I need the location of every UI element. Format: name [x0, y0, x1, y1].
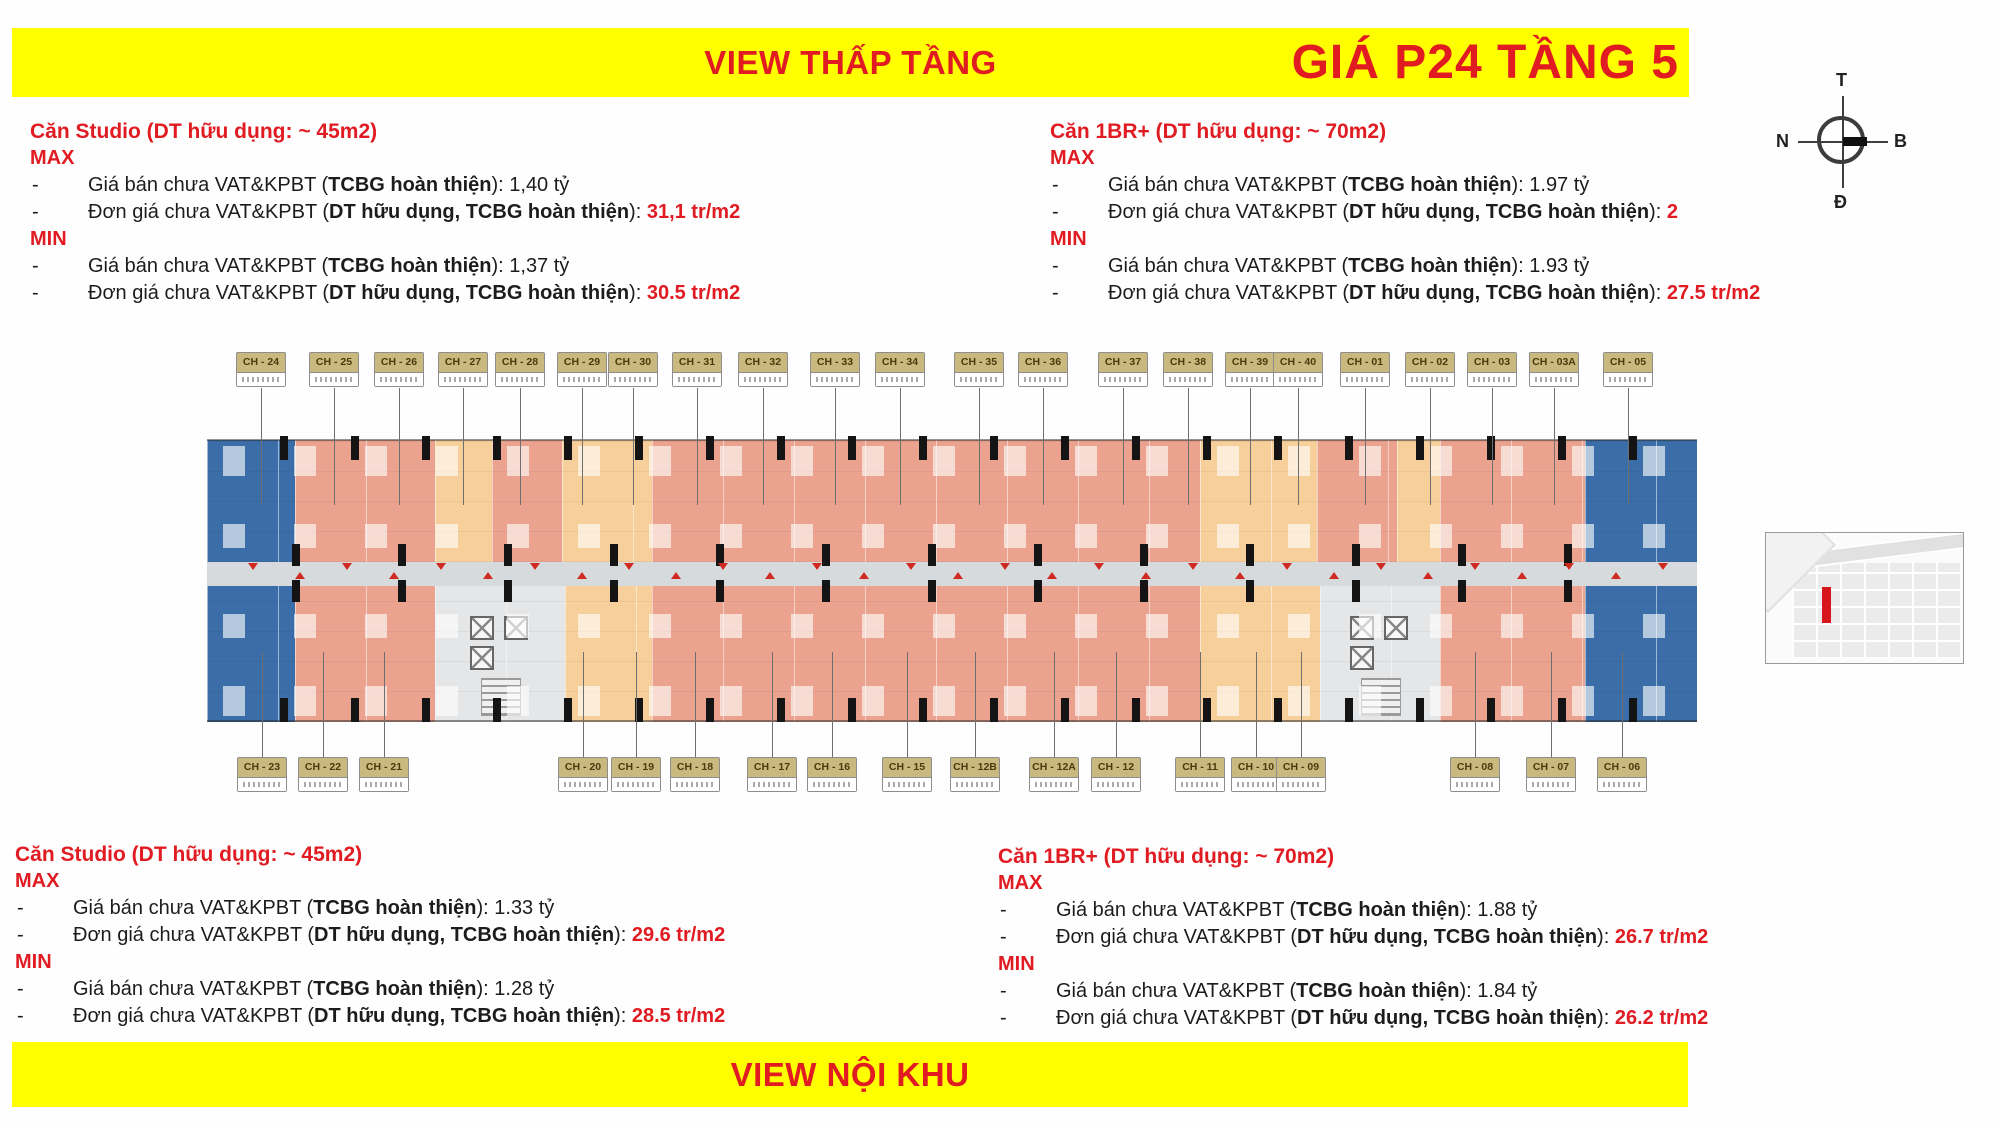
door-marker: [671, 572, 681, 579]
unit-leader-line: [633, 388, 634, 505]
corridor-wall-tick: [1564, 580, 1572, 602]
unit-label: CH - 12B: [950, 757, 1000, 792]
corridor-wall-tick: [504, 544, 512, 566]
corridor-wall-tick: [292, 580, 300, 602]
wall-tick: [351, 436, 359, 460]
unit-area-strip: [1164, 372, 1212, 386]
unit-code: CH - 26: [375, 353, 423, 372]
unit-code: CH - 32: [739, 353, 787, 372]
wall-tick: [1558, 436, 1566, 460]
unit-leader-line: [835, 388, 836, 505]
wall-tick: [848, 436, 856, 460]
wall-tick: [1203, 436, 1211, 460]
unit-label: CH - 37: [1098, 352, 1148, 387]
wall-tick: [919, 436, 927, 460]
unit-leader-line: [975, 652, 976, 757]
wall-tick: [1132, 436, 1140, 460]
unit-label: CH - 08: [1450, 757, 1500, 792]
unit-area-strip: [238, 777, 286, 791]
unit-area-strip: [1092, 777, 1140, 791]
unit-leader-line: [463, 388, 464, 505]
unit-leader-line: [1200, 652, 1201, 757]
corridor-wall-tick: [1246, 580, 1254, 602]
corridor-wall-tick: [504, 580, 512, 602]
unit-leader-line: [1301, 652, 1302, 757]
wall-tick: [1416, 436, 1424, 460]
unit-code: CH - 30: [609, 353, 657, 372]
corridor-wall-tick: [1034, 544, 1042, 566]
unit-area-strip: [808, 777, 856, 791]
door-marker: [812, 563, 822, 570]
unit-label: CH - 36: [1018, 352, 1068, 387]
door-marker: [1658, 563, 1668, 570]
unit-label: CH - 39: [1225, 352, 1275, 387]
facade-line: [207, 439, 1697, 441]
door-marker: [577, 572, 587, 579]
door-marker: [483, 572, 493, 579]
unit-label: CH - 35: [954, 352, 1004, 387]
unit-label: CH - 06: [1597, 757, 1647, 792]
unit-label: CH - 02: [1405, 352, 1455, 387]
door-marker: [1047, 572, 1057, 579]
wall-tick: [1132, 698, 1140, 722]
unit-area-strip: [1468, 372, 1516, 386]
unit-label: CH - 34: [875, 352, 925, 387]
unit-leader-line: [900, 388, 901, 505]
unit-code: CH - 15: [883, 758, 931, 777]
corridor-wall-tick: [928, 544, 936, 566]
unit-leader-line: [1554, 388, 1555, 505]
unit-leader-line: [1475, 652, 1476, 757]
unit-area-strip: [1274, 372, 1322, 386]
unit-code: CH - 38: [1164, 353, 1212, 372]
unit-label: CH - 19: [611, 757, 661, 792]
unit-leader-line: [697, 388, 698, 505]
unit-leader-line: [583, 652, 584, 757]
bottom-banner: VIEW NỘI KHU: [12, 1042, 1688, 1107]
unit-leader-line: [261, 388, 262, 505]
unit-area-strip: [739, 372, 787, 386]
wall-tick: [1274, 436, 1282, 460]
unit-area-strip: [612, 777, 660, 791]
unit-leader-line: [1430, 388, 1431, 505]
unit-leader-line: [763, 388, 764, 505]
corridor-wall-tick: [716, 580, 724, 602]
wall-tick: [280, 436, 288, 460]
unit-code: CH - 39: [1226, 353, 1274, 372]
wall-tick: [1345, 698, 1353, 722]
unit-label: CH - 27: [438, 352, 488, 387]
map-street-grid: [1792, 563, 1960, 659]
door-marker: [1282, 563, 1292, 570]
unit-code: CH - 33: [811, 353, 859, 372]
site-map-thumbnail: [1765, 532, 1964, 664]
unit-leader-line: [772, 652, 773, 757]
unit-code: CH - 23: [238, 758, 286, 777]
unit-label: CH - 30: [608, 352, 658, 387]
unit-code: CH - 12B: [951, 758, 999, 777]
door-marker: [765, 572, 775, 579]
unit-code: CH - 03: [1468, 353, 1516, 372]
wall-tick: [1203, 698, 1211, 722]
unit-label: CH - 33: [810, 352, 860, 387]
facade-line: [207, 720, 1697, 722]
unit-code: CH - 22: [299, 758, 347, 777]
corridor-wall-tick: [928, 580, 936, 602]
wall-tick: [706, 698, 714, 722]
wall-tick: [422, 698, 430, 722]
door-marker: [624, 563, 634, 570]
unit-area-strip: [237, 372, 285, 386]
unit-area-strip: [439, 372, 487, 386]
wall-tick: [990, 698, 998, 722]
corridor-wall-tick: [292, 544, 300, 566]
wall-tick: [1558, 698, 1566, 722]
wall-tick: [706, 436, 714, 460]
corridor-wall-tick: [1352, 580, 1360, 602]
unit-code: CH - 06: [1598, 758, 1646, 777]
unit-area-strip: [1604, 372, 1652, 386]
wall-tick: [1061, 698, 1069, 722]
wall-tick: [1487, 698, 1495, 722]
wall-tick: [564, 698, 572, 722]
unit-code: CH - 25: [310, 353, 358, 372]
unit-leader-line: [979, 388, 980, 505]
door-marker: [1235, 572, 1245, 579]
corridor-wall-tick: [610, 544, 618, 566]
unit-label: CH - 16: [807, 757, 857, 792]
corridor-wall-tick: [1352, 544, 1360, 566]
door-marker: [718, 563, 728, 570]
unit-area-strip: [748, 777, 796, 791]
unit-leader-line: [1250, 388, 1251, 505]
unit-label: CH - 03: [1467, 352, 1517, 387]
unit-label: CH - 40: [1273, 352, 1323, 387]
wall-tick: [919, 698, 927, 722]
wall-tick: [990, 436, 998, 460]
corridor-wall-tick: [398, 544, 406, 566]
unit-area-strip: [1451, 777, 1499, 791]
unit-area-strip: [883, 777, 931, 791]
corridor-wall-tick: [1458, 580, 1466, 602]
unit-code: CH - 03A: [1530, 353, 1578, 372]
door-marker: [1094, 563, 1104, 570]
wall-tick: [1629, 698, 1637, 722]
corridor-wall-tick: [1140, 580, 1148, 602]
unit-area-strip: [1527, 777, 1575, 791]
wall-tick: [848, 698, 856, 722]
corridor-wall-tick: [398, 580, 406, 602]
unit-leader-line: [1365, 388, 1366, 505]
unit-code: CH - 10: [1232, 758, 1280, 777]
unit-code: CH - 29: [558, 353, 606, 372]
unit-leader-line: [832, 652, 833, 757]
unit-leader-line: [334, 388, 335, 505]
unit-code: CH - 17: [748, 758, 796, 777]
unit-area-strip: [360, 777, 408, 791]
unit-code: CH - 21: [360, 758, 408, 777]
unit-label: CH - 10: [1231, 757, 1281, 792]
unit-code: CH - 27: [439, 353, 487, 372]
unit-area-strip: [1019, 372, 1067, 386]
unit-code: CH - 05: [1604, 353, 1652, 372]
door-marker: [436, 563, 446, 570]
unit-code: CH - 12: [1092, 758, 1140, 777]
unit-label: CH - 11: [1175, 757, 1225, 792]
unit-area-strip: [955, 372, 1003, 386]
wall-tick: [564, 436, 572, 460]
unit-code: CH - 01: [1341, 353, 1389, 372]
corridor-wall-tick: [1246, 544, 1254, 566]
door-marker: [1517, 572, 1527, 579]
unit-code: CH - 18: [671, 758, 719, 777]
unit-area-strip: [1530, 372, 1578, 386]
door-marker: [1611, 572, 1621, 579]
door-marker: [248, 563, 258, 570]
corridor-wall-tick: [1140, 544, 1148, 566]
map-building-marker: [1822, 587, 1831, 623]
unit-leader-line: [1256, 652, 1257, 757]
unit-label: CH - 29: [557, 352, 607, 387]
door-marker: [342, 563, 352, 570]
unit-area-strip: [671, 777, 719, 791]
unit-leader-line: [1628, 388, 1629, 505]
door-marker: [1141, 572, 1151, 579]
unit-label: CH - 21: [359, 757, 409, 792]
wall-tick: [1274, 698, 1282, 722]
door-marker: [1470, 563, 1480, 570]
unit-area-strip: [1226, 372, 1274, 386]
elevator-shaft: [1350, 646, 1374, 670]
unit-area-strip: [299, 777, 347, 791]
unit-label: CH - 22: [298, 757, 348, 792]
wall-tick: [493, 698, 501, 722]
wall-tick: [351, 698, 359, 722]
unit-code: CH - 07: [1527, 758, 1575, 777]
unit-code: CH - 31: [673, 353, 721, 372]
unit-leader-line: [907, 652, 908, 757]
unit-area-strip: [673, 372, 721, 386]
wall-tick: [777, 436, 785, 460]
unit-label: CH - 31: [672, 352, 722, 387]
unit-leader-line: [399, 388, 400, 505]
unit-area-strip: [951, 777, 999, 791]
unit-leader-line: [1492, 388, 1493, 505]
unit-leader-line: [520, 388, 521, 505]
unit-code: CH - 40: [1274, 353, 1322, 372]
unit-label: CH - 20: [558, 757, 608, 792]
unit-label: CH - 01: [1340, 352, 1390, 387]
unit-code: CH - 35: [955, 353, 1003, 372]
unit-label: CH - 23: [237, 757, 287, 792]
price-sheet-page: VIEW THẤP TẦNG GIÁ P24 TẦNG 5 T Đ N B Că…: [0, 0, 2000, 1125]
unit-code: CH - 09: [1277, 758, 1325, 777]
wall-tick: [493, 436, 501, 460]
unit-area-strip: [1099, 372, 1147, 386]
unit-area-strip: [811, 372, 859, 386]
wall-tick: [422, 436, 430, 460]
floor-plan: CH - 24CH - 25CH - 26CH - 27CH - 28CH - …: [0, 0, 2000, 1125]
unit-area-strip: [876, 372, 924, 386]
door-marker: [1188, 563, 1198, 570]
corridor-wall-tick: [610, 580, 618, 602]
unit-leader-line: [1123, 388, 1124, 505]
unit-area-strip: [1176, 777, 1224, 791]
door-marker: [530, 563, 540, 570]
unit-label: CH - 25: [309, 352, 359, 387]
unit-label: CH - 03A: [1529, 352, 1579, 387]
unit-area-strip: [1598, 777, 1646, 791]
unit-leader-line: [1622, 652, 1623, 757]
unit-label: CH - 18: [670, 757, 720, 792]
unit-label: CH - 09: [1276, 757, 1326, 792]
elevator-shaft: [470, 646, 494, 670]
unit-leader-line: [582, 388, 583, 505]
unit-area-strip: [1232, 777, 1280, 791]
unit-code: CH - 08: [1451, 758, 1499, 777]
unit-code: CH - 16: [808, 758, 856, 777]
unit-area-strip: [1406, 372, 1454, 386]
unit-label: CH - 12: [1091, 757, 1141, 792]
view-noi-khu-label: VIEW NỘI KHU: [12, 1042, 1688, 1107]
unit-area-strip: [496, 372, 544, 386]
room-furniture-strip: [207, 446, 1697, 476]
unit-label: CH - 05: [1603, 352, 1653, 387]
unit-area-strip: [559, 777, 607, 791]
unit-label: CH - 26: [374, 352, 424, 387]
unit-label: CH - 15: [882, 757, 932, 792]
unit-leader-line: [1054, 652, 1055, 757]
unit-code: CH - 20: [559, 758, 607, 777]
unit-label: CH - 24: [236, 352, 286, 387]
unit-label: CH - 12A: [1029, 757, 1079, 792]
unit-area-strip: [609, 372, 657, 386]
unit-label: CH - 32: [738, 352, 788, 387]
door-marker: [1000, 563, 1010, 570]
wall-tick: [1487, 436, 1495, 460]
door-marker: [1376, 563, 1386, 570]
unit-area-strip: [375, 372, 423, 386]
unit-area-strip: [310, 372, 358, 386]
wall-tick: [280, 698, 288, 722]
unit-leader-line: [1043, 388, 1044, 505]
unit-code: CH - 28: [496, 353, 544, 372]
wall-tick: [1061, 436, 1069, 460]
door-marker: [295, 572, 305, 579]
unit-area-strip: [1030, 777, 1078, 791]
room-furniture-strip: [207, 614, 1697, 638]
door-marker: [953, 572, 963, 579]
unit-leader-line: [1188, 388, 1189, 505]
door-marker: [1329, 572, 1339, 579]
unit-code: CH - 11: [1176, 758, 1224, 777]
corridor-wall-tick: [1458, 544, 1466, 566]
door-marker: [859, 572, 869, 579]
wall-tick: [1416, 698, 1424, 722]
door-marker: [906, 563, 916, 570]
unit-leader-line: [262, 652, 263, 757]
wall-tick: [635, 436, 643, 460]
unit-label: CH - 38: [1163, 352, 1213, 387]
unit-leader-line: [695, 652, 696, 757]
corridor-wall-tick: [822, 544, 830, 566]
corridor-wall-tick: [822, 580, 830, 602]
unit-code: CH - 02: [1406, 353, 1454, 372]
unit-area-strip: [1277, 777, 1325, 791]
unit-leader-line: [1551, 652, 1552, 757]
door-marker: [1564, 563, 1574, 570]
unit-code: CH - 34: [876, 353, 924, 372]
room-furniture-strip: [207, 686, 1697, 716]
unit-code: CH - 19: [612, 758, 660, 777]
unit-leader-line: [1298, 388, 1299, 505]
unit-label: CH - 28: [495, 352, 545, 387]
door-marker: [1423, 572, 1433, 579]
wall-tick: [777, 698, 785, 722]
unit-leader-line: [636, 652, 637, 757]
unit-label: CH - 07: [1526, 757, 1576, 792]
unit-leader-line: [1116, 652, 1117, 757]
unit-label: CH - 17: [747, 757, 797, 792]
unit-leader-line: [323, 652, 324, 757]
unit-code: CH - 37: [1099, 353, 1147, 372]
wall-tick: [1345, 436, 1353, 460]
unit-area-strip: [558, 372, 606, 386]
unit-code: CH - 36: [1019, 353, 1067, 372]
door-marker: [389, 572, 399, 579]
wall-tick: [1629, 436, 1637, 460]
unit-code: CH - 24: [237, 353, 285, 372]
unit-area-strip: [1341, 372, 1389, 386]
corridor-wall-tick: [1034, 580, 1042, 602]
unit-code: CH - 12A: [1030, 758, 1078, 777]
unit-leader-line: [384, 652, 385, 757]
room-furniture-strip: [207, 524, 1697, 548]
